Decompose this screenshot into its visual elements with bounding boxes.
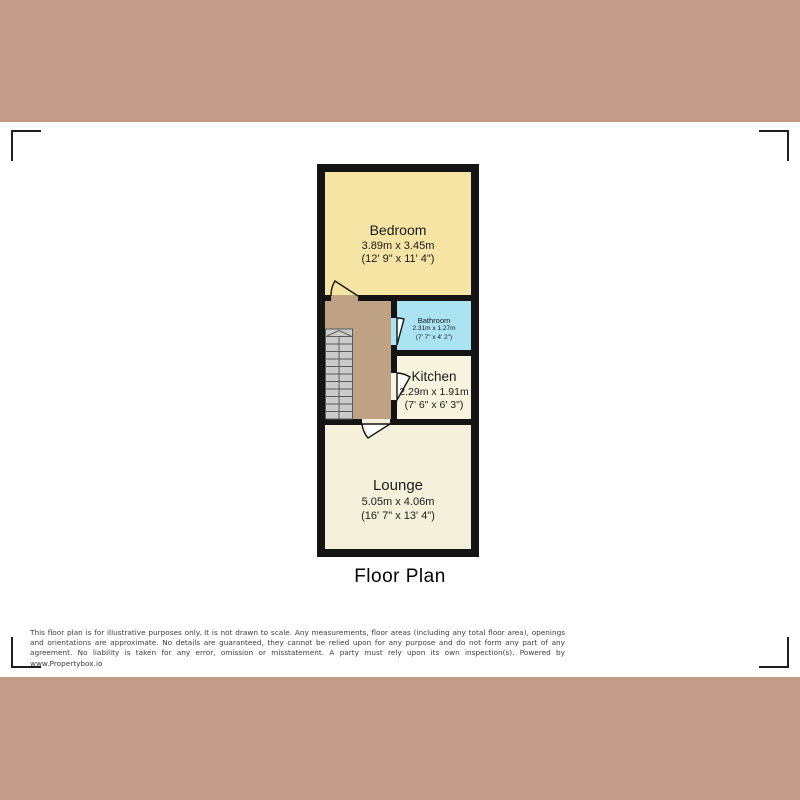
wall-lounge-right [390, 419, 471, 425]
floor-plan-drawing [0, 0, 800, 800]
kitchen-floor [397, 356, 471, 419]
bathroom-floor [397, 301, 471, 350]
wall-lounge-left [325, 419, 362, 425]
floor-plan-title: Floor Plan [300, 566, 500, 588]
staircase [326, 329, 353, 419]
disclaimer-text: This floor plan is for illustrative purp… [30, 628, 565, 669]
bathroom-doorway [391, 318, 397, 345]
kitchen-doorway [391, 373, 397, 400]
wall-bedroom-hall [358, 295, 471, 301]
bedroom-floor [325, 172, 471, 295]
wall-bedroom-left-stub [325, 295, 331, 301]
lounge-floor [325, 425, 471, 549]
page: Bedroom 3.89m x 3.45m (12' 9" x 11' 4") … [0, 0, 800, 800]
wall-hall-bathroom-top [391, 301, 397, 318]
wall-hall-bathroom-bottom [391, 345, 397, 373]
bedroom-doorway [331, 295, 358, 301]
wall-bathroom-kitchen [397, 350, 471, 356]
